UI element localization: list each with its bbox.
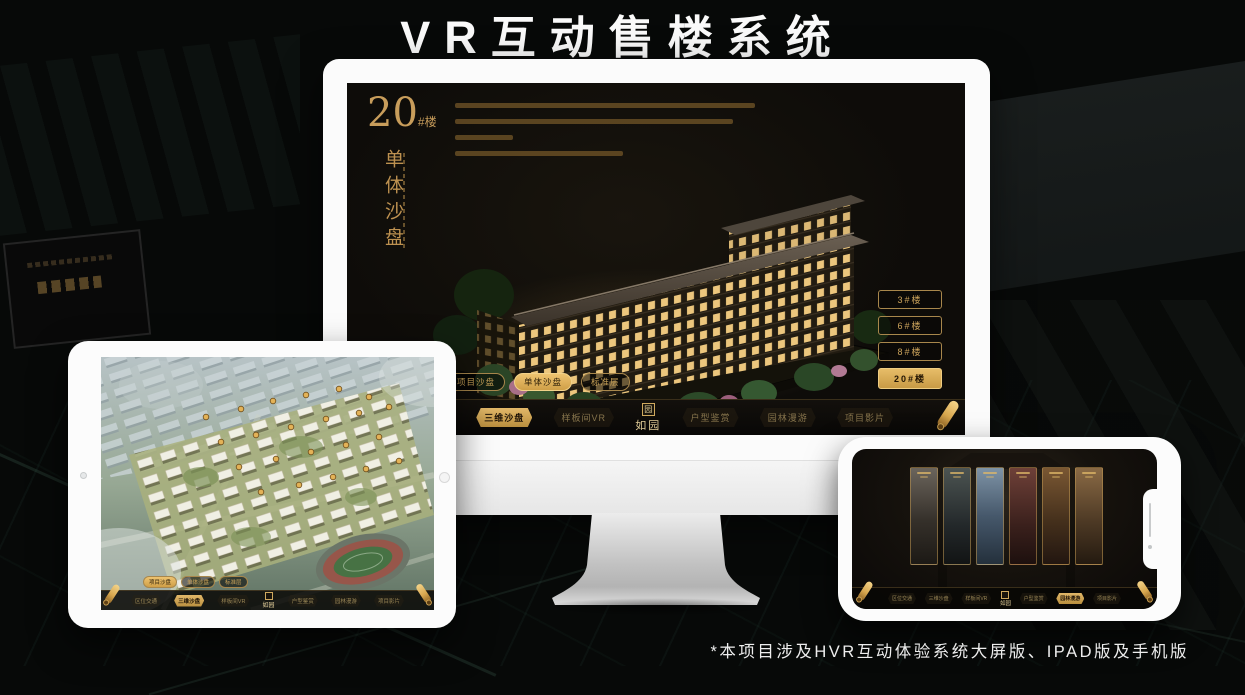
logo-text: 如园 (635, 417, 661, 433)
scroll-icon[interactable] (107, 583, 115, 607)
mode-pills: 项目沙盘 单体沙盘 标准层 (447, 373, 630, 391)
ipad-navbar: 区位交通 三维沙盘 样板间VR 如园 户型鉴赏 园林漫游 项目影片 (101, 590, 434, 610)
phone-app-logo: 如园 (1000, 591, 1011, 607)
ipad-logo-seal-icon (265, 592, 273, 600)
ipad-nav-location[interactable]: 区位交通 (131, 595, 161, 607)
description-paragraph (455, 103, 765, 167)
app-logo: 园 如园 (635, 403, 661, 433)
phone-nav-garden-tour[interactable]: 园林漫游 (1056, 593, 1084, 604)
scroll-icon[interactable] (941, 399, 953, 433)
description-line (455, 119, 733, 124)
phone-nav-3d-sandbox[interactable]: 三维沙盘 (925, 593, 953, 604)
ipad-pill-single-sandbox[interactable]: 单体沙盘 (181, 576, 215, 588)
ipad-nav-3d-sandbox[interactable]: 三维沙盘 (174, 595, 204, 607)
nav-item-floorplans[interactable]: 户型鉴赏 (682, 408, 738, 427)
scene-card-showroom[interactable] (943, 467, 971, 565)
block-number-suffix: #楼 (418, 115, 437, 129)
ipad-camera (80, 472, 87, 479)
subtitle-deco-line (403, 153, 405, 249)
phone-screen: 区位交通 三维沙盘 样板间VR 如园 户型鉴赏 园林漫游 项目影片 (852, 449, 1157, 609)
scroll-icon[interactable] (420, 583, 428, 607)
page-title: VR互动售楼系统 (0, 1, 1245, 66)
description-line (455, 103, 755, 108)
ipad-home-button (439, 472, 450, 483)
nav-item-project-film[interactable]: 项目影片 (837, 408, 893, 427)
nav-item-garden-tour[interactable]: 园林漫游 (760, 408, 816, 427)
scene-card-lounge[interactable] (1075, 467, 1103, 565)
scroll-icon[interactable] (1141, 580, 1149, 604)
phone-nav-showroom-vr[interactable]: 样板间VR (961, 593, 991, 604)
ipad-pill-standard-floor[interactable]: 标准层 (219, 576, 248, 588)
logo-seal-icon: 园 (642, 403, 655, 416)
description-line (455, 135, 513, 140)
scroll-icon[interactable] (860, 580, 868, 604)
floor-button-6[interactable]: 6#楼 (878, 316, 942, 335)
nav-item-showroom-vr[interactable]: 样板间VR (554, 408, 615, 427)
scene-card-shelf[interactable] (1042, 467, 1070, 565)
scene-card-building[interactable] (976, 467, 1004, 565)
nav-item-3d-sandbox[interactable]: 三维沙盘 (476, 408, 532, 427)
scene-card-gallery-hall[interactable] (1009, 467, 1037, 565)
phone-logo-seal-icon (1001, 591, 1009, 599)
ipad-nav-showroom-vr[interactable]: 样板间VR (217, 595, 249, 607)
ipad-nav-floorplans[interactable]: 户型鉴赏 (288, 595, 318, 607)
scene-card-interior[interactable] (910, 467, 938, 565)
poster-canvas: { "page": { "title": "VR互动售楼系统", "footno… (0, 0, 1245, 666)
floor-button-8[interactable]: 8#楼 (878, 342, 942, 361)
background-aerial-right (975, 56, 1245, 294)
aerial-masterplan-render[interactable] (101, 357, 434, 610)
ipad-nav-garden-tour[interactable]: 园林漫游 (331, 595, 361, 607)
ipad-nav-project-film[interactable]: 项目影片 (374, 595, 404, 607)
plaque-text-smudge (37, 275, 102, 294)
description-line (455, 151, 623, 156)
block-number: 20 (367, 90, 418, 136)
phone-speaker (1149, 503, 1151, 537)
ipad-screen: 项目沙盘 单体沙盘 标准层 区位交通 三维沙盘 样板间VR 如园 户型鉴赏 园林… (101, 357, 434, 610)
phone-nav-location[interactable]: 区位交通 (888, 593, 916, 604)
ipad-logo-text: 如园 (263, 600, 275, 609)
monitor-stand (536, 513, 776, 611)
floor-selector: 3#楼 6#楼 8#楼 20#楼 (878, 290, 942, 389)
ipad-pill-project-sandbox[interactable]: 项目沙盘 (143, 576, 177, 588)
background-plaque (3, 229, 151, 349)
ipad-app-logo: 如园 (263, 592, 275, 609)
floor-button-3[interactable]: 3#楼 (878, 290, 942, 309)
ipad-mode-pills: 项目沙盘 单体沙盘 标准层 (143, 576, 248, 588)
floor-button-20[interactable]: 20#楼 (878, 368, 942, 389)
phone-logo-text: 如园 (1000, 599, 1011, 607)
scene-card-gallery (910, 467, 1103, 565)
phone-notch (1143, 489, 1158, 569)
footnote-text: *本项目涉及HVR互动体验系统大屏版、IPAD版及手机版 (710, 638, 1189, 662)
phone-nav-floorplans[interactable]: 户型鉴赏 (1020, 593, 1048, 604)
phone-navbar: 区位交通 三维沙盘 样板间VR 如园 户型鉴赏 园林漫游 项目影片 (852, 587, 1157, 609)
block-headline: 20#楼 (367, 93, 437, 133)
plaque-subtext-smudge (27, 254, 113, 268)
phone-nav-project-film[interactable]: 项目影片 (1093, 593, 1121, 604)
phone-camera (1148, 545, 1152, 549)
pill-standard-floor[interactable]: 标准层 (581, 373, 630, 391)
pill-single-sandbox[interactable]: 单体沙盘 (514, 373, 572, 391)
monitor-shadow (540, 598, 776, 616)
